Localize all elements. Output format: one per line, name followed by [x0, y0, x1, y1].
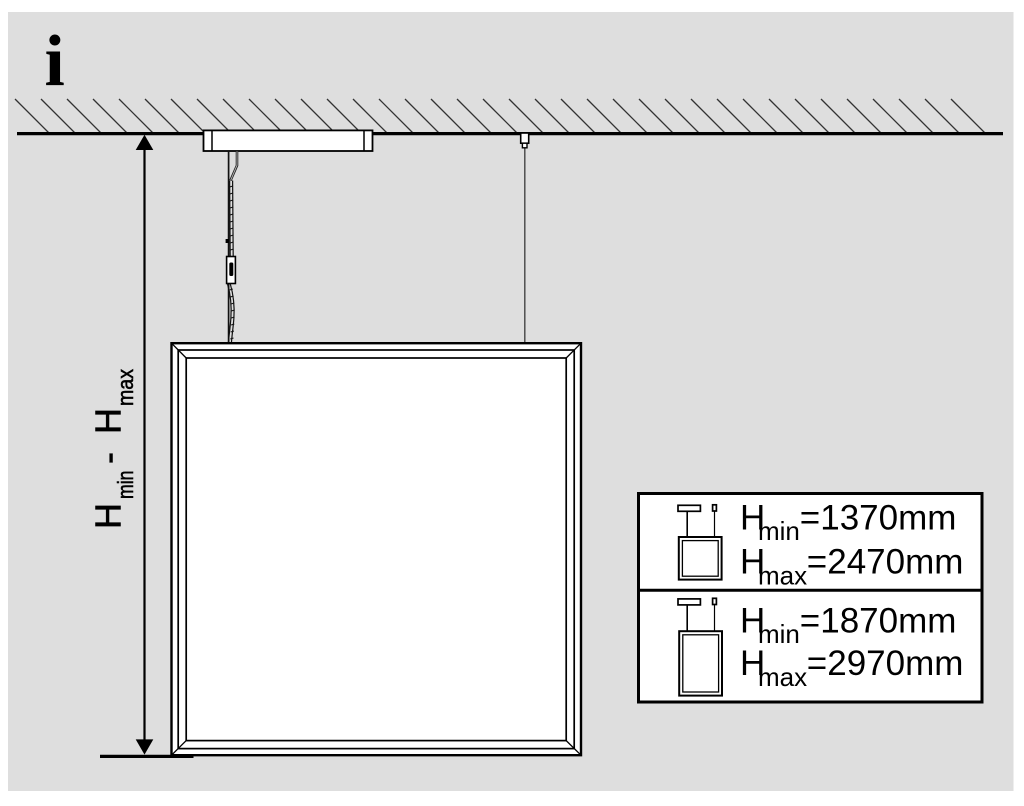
svg-text:i: i	[45, 21, 65, 102]
svg-text:H: H	[88, 503, 129, 529]
svg-text:min: min	[758, 516, 800, 546]
svg-text:-: -	[88, 452, 129, 464]
svg-text:=1370mm: =1370mm	[800, 498, 957, 537]
svg-text:=2970mm: =2970mm	[807, 644, 964, 683]
svg-text:=1870mm: =1870mm	[800, 601, 957, 640]
svg-text:H: H	[88, 408, 129, 434]
svg-text:max: max	[758, 560, 807, 590]
svg-text:max: max	[758, 662, 807, 692]
svg-text:min: min	[113, 471, 138, 500]
svg-text:=2470mm: =2470mm	[807, 543, 964, 582]
svg-text:max: max	[113, 368, 138, 406]
